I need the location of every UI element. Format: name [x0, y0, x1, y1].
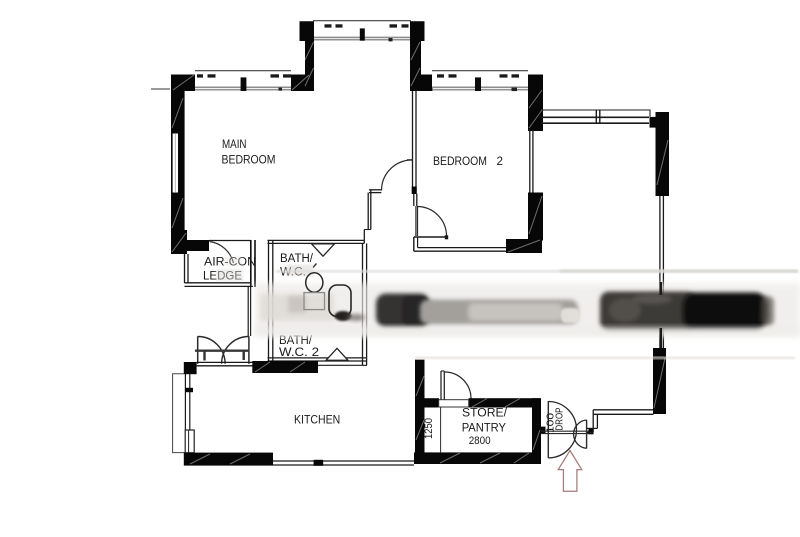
svg-text:BEDROOM: BEDROOM	[222, 153, 276, 167]
svg-text:STORE/: STORE/	[462, 408, 508, 420]
svg-text:MAIN: MAIN	[222, 137, 247, 151]
svg-text:2800: 2800	[469, 435, 491, 447]
svg-text:BATH/: BATH/	[280, 253, 314, 265]
svg-text:DROP: DROP	[554, 407, 565, 430]
svg-text:BEDROOM: BEDROOM	[433, 154, 487, 168]
svg-text:KITCHEN: KITCHEN	[294, 413, 340, 427]
svg-text:2: 2	[497, 154, 504, 168]
svg-text:PANTRY: PANTRY	[462, 423, 507, 435]
svg-text:1250: 1250	[423, 418, 435, 439]
svg-text:W.C. 2: W.C. 2	[279, 347, 319, 359]
